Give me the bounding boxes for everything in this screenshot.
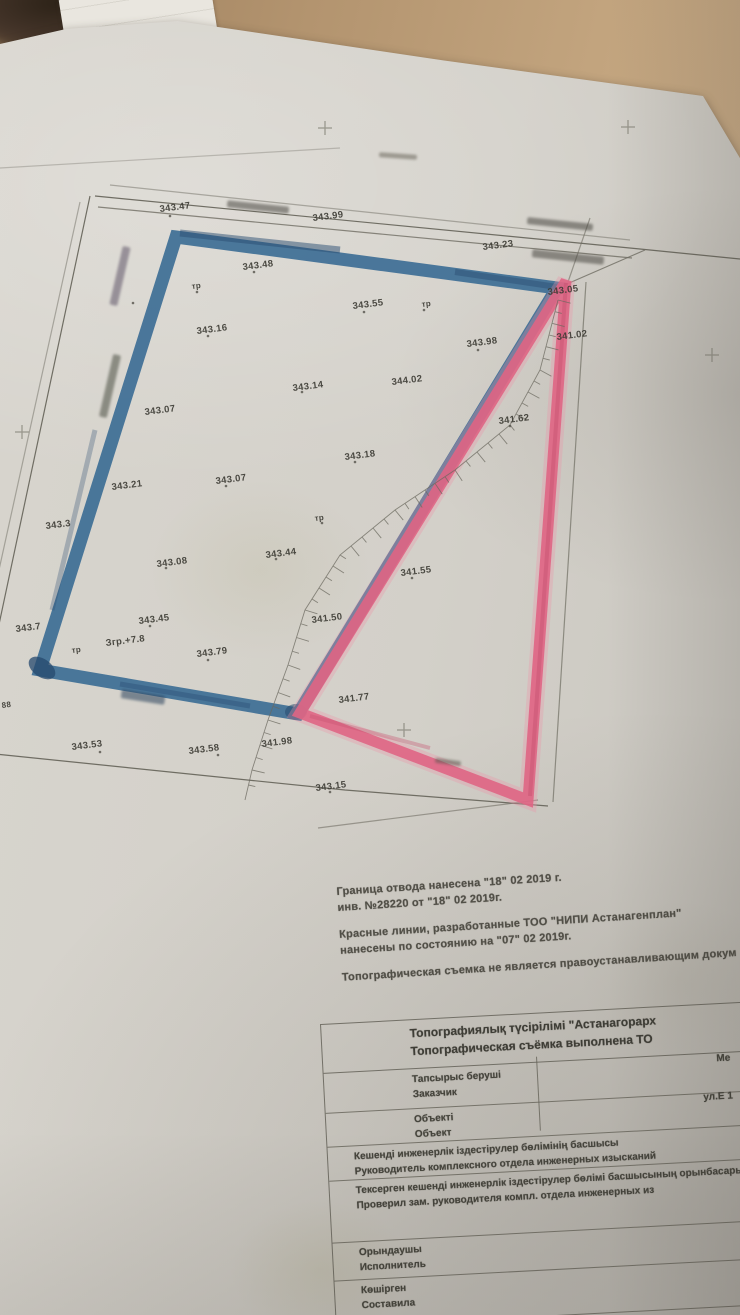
elevation-label: 343.99 <box>312 209 344 224</box>
elevation-label: 341.62 <box>498 412 530 427</box>
title-block-table: Топографиялық түсірілімі "Астанагорарх Т… <box>320 987 740 1315</box>
elevation-label: 343.55 <box>352 297 384 312</box>
elevation-label: 343.48 <box>242 258 274 273</box>
elevation-label: тр <box>421 299 431 309</box>
elevation-label: 343.07 <box>215 472 247 487</box>
elevation-label: Згр.+7.8 <box>105 633 146 649</box>
elevation-label: 343.21 <box>111 478 143 493</box>
elevation-label: 343.47 <box>159 200 191 215</box>
red-line-triangle-pink <box>300 281 566 800</box>
elevation-label: тр <box>71 645 81 655</box>
illegible-annotation <box>109 246 130 306</box>
elevation-label: 343.45 <box>138 612 170 627</box>
table-fragment-scale: Ме <box>716 1053 730 1065</box>
paper-wrap: 343.47343.99343.23343.48343.05тр343.55тр… <box>0 0 740 1315</box>
elevation-label: 343.23 <box>482 238 514 253</box>
elevation-label: 343.7 <box>15 621 41 635</box>
elevation-label: 343.53 <box>71 738 103 753</box>
title-block-rows: Тапсырыс берушіЗаказчикОбъектіОбъектКеше… <box>324 1037 740 1315</box>
elevation-label: 341.98 <box>261 735 293 750</box>
elevation-label: 343.44 <box>265 546 297 561</box>
elevation-label: 344.02 <box>391 373 423 388</box>
elevation-label: 343.18 <box>344 448 376 463</box>
illegible-annotation <box>379 152 417 160</box>
elevation-label: 341.02 <box>556 328 588 343</box>
elevation-label: тр <box>191 281 201 291</box>
table-fragment-address: ул.Е 1 <box>703 1090 733 1103</box>
elevation-label: 341.55 <box>400 564 432 579</box>
elevation-label: 343.15 <box>315 779 347 794</box>
elevation-label: тр <box>314 513 324 523</box>
elevation-label: 341.77 <box>338 691 370 706</box>
illegible-annotation <box>527 217 593 231</box>
elevation-label: 343.3 <box>45 518 71 532</box>
elevation-label: 343.58 <box>188 742 220 757</box>
elevation-label: 343.14 <box>292 379 324 394</box>
elevation-label: 343.07 <box>144 403 176 418</box>
elevation-label: 343.16 <box>196 322 228 337</box>
elevation-label: 343.98 <box>466 335 498 350</box>
photo-scene: 343.47343.99343.23343.48343.05тр343.55тр… <box>0 0 740 1315</box>
elevation-label: 88 <box>1 700 12 710</box>
allotment-boundary-blue <box>25 233 557 720</box>
survey-document-paper: 343.47343.99343.23343.48343.05тр343.55тр… <box>0 0 740 1315</box>
elevation-label: 343.08 <box>156 555 188 570</box>
elevation-label: 341.50 <box>311 611 343 626</box>
elevation-label: 343.79 <box>196 645 228 660</box>
